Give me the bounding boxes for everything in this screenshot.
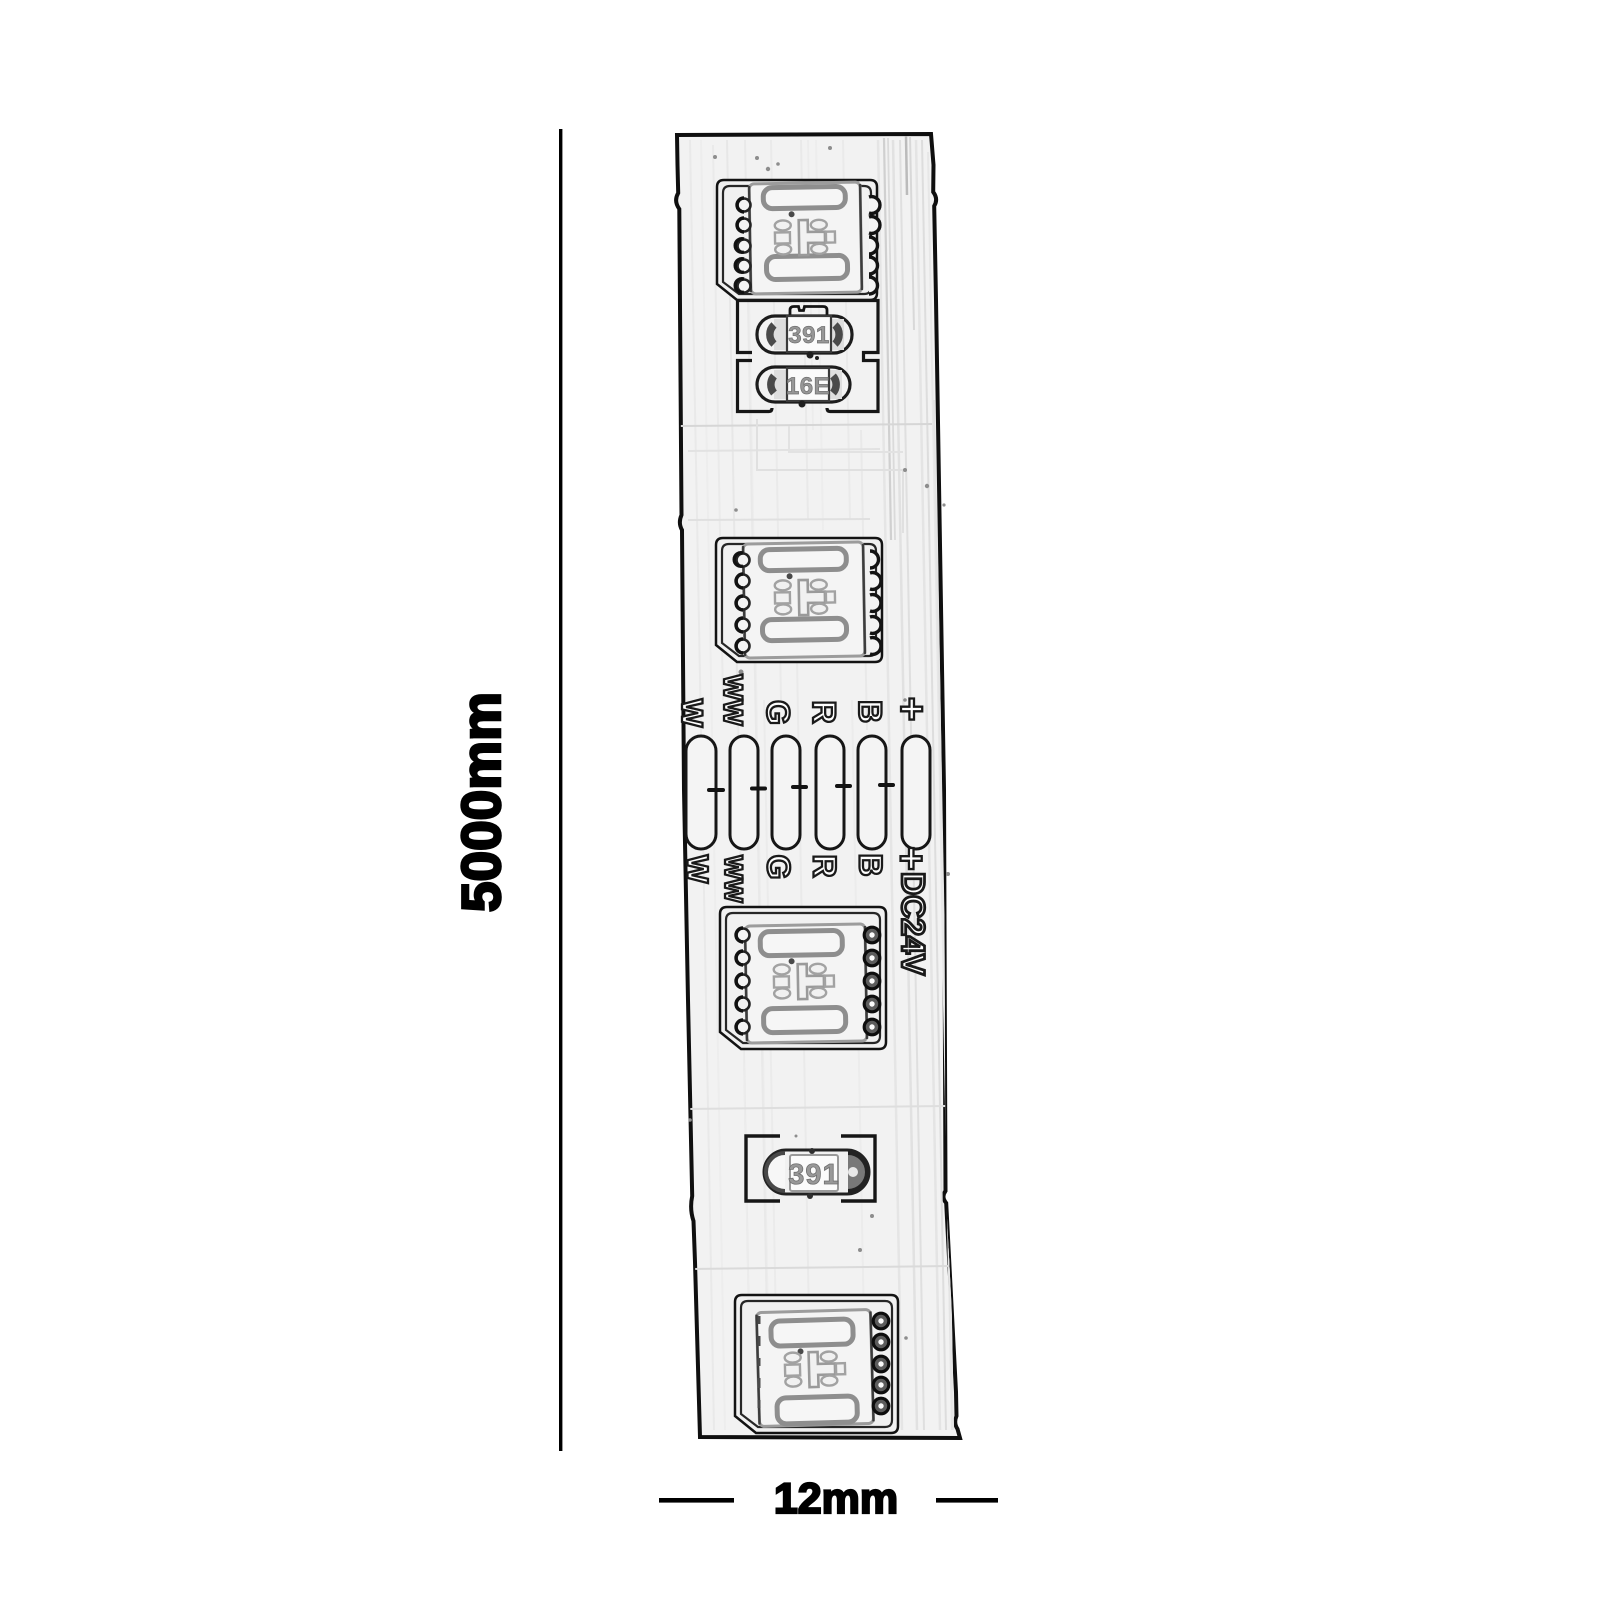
svg-text:WW: WW	[719, 855, 747, 903]
svg-text:WW: WW	[718, 675, 748, 726]
svg-text:R: R	[807, 854, 843, 877]
svg-text:16E: 16E	[786, 373, 830, 400]
svg-text:+: +	[888, 846, 935, 871]
svg-text:391: 391	[788, 1159, 839, 1191]
svg-text:5000mm: 5000mm	[450, 692, 512, 912]
svg-text:12mm: 12mm	[774, 1475, 898, 1523]
svg-text:W: W	[675, 699, 708, 728]
svg-text:R: R	[806, 700, 842, 723]
svg-text:W: W	[681, 855, 714, 884]
svg-text:G: G	[760, 700, 796, 725]
svg-text:391: 391	[788, 322, 830, 349]
svg-text:G: G	[761, 855, 797, 880]
svg-text:+: +	[889, 697, 936, 722]
svg-text:DC24V: DC24V	[895, 872, 931, 976]
svg-text:B: B	[853, 853, 889, 876]
svg-text:B: B	[852, 700, 888, 723]
